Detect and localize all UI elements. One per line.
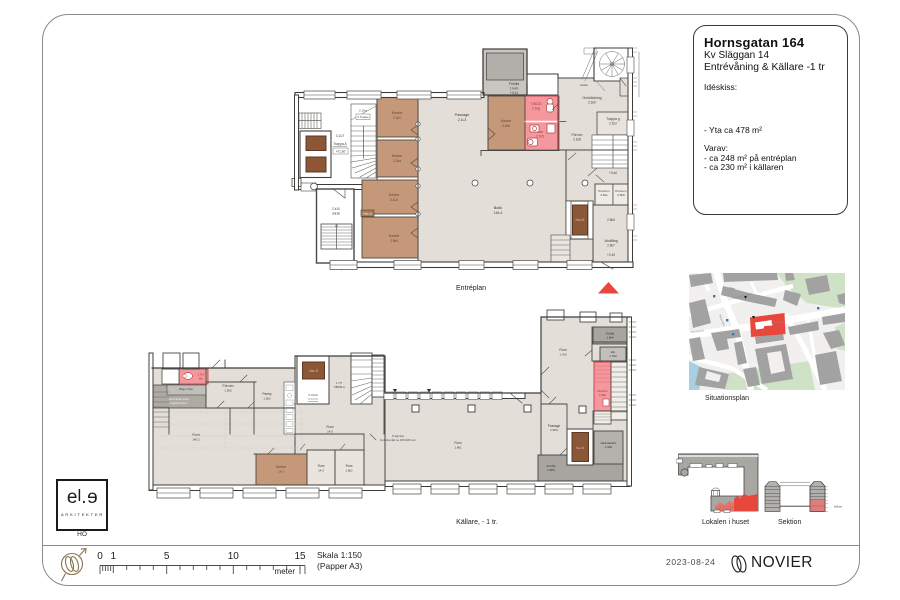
svg-text:Butik: Butik <box>494 206 503 210</box>
svg-text:1.7k0: 1.7k0 <box>559 353 567 357</box>
svg-text:Rum: Rum <box>559 348 566 352</box>
svg-text:Kontor: Kontor <box>501 119 512 123</box>
svg-text:hiss A: hiss A <box>311 142 321 146</box>
svg-text:15: 15 <box>294 551 306 562</box>
svg-text:Förrum: Förrum <box>572 133 583 137</box>
svg-text:14.0: 14.0 <box>327 430 333 434</box>
svg-text:1.6k0: 1.6k0 <box>605 445 612 449</box>
svg-text:1.8k1: 1.8k1 <box>454 446 462 450</box>
svg-text:2.1k0: 2.1k0 <box>588 101 596 105</box>
svg-text:T/8009 A: T/8009 A <box>333 385 345 389</box>
svg-text:14.2: 14.2 <box>278 470 284 474</box>
svg-text:Omklädning: Omklädning <box>582 96 601 100</box>
svg-text:2.1Lb: 2.1Lb <box>390 198 398 202</box>
svg-text:0: 0 <box>97 551 103 562</box>
svg-text:Trappa A: Trappa A <box>333 142 347 146</box>
svg-text:3.1U7: 3.1U7 <box>336 134 345 138</box>
svg-text:1.8k2: 1.8k2 <box>345 469 353 473</box>
svg-text:2.1ka: 2.1ka <box>393 159 401 163</box>
svg-text:meter: meter <box>275 567 296 576</box>
svg-text:140.2: 140.2 <box>192 438 200 442</box>
svg-text:Rum: Rum <box>326 425 333 429</box>
svg-text:+0,41: +0,41 <box>510 91 518 95</box>
svg-text:1: 1 <box>111 551 117 562</box>
svg-text:146.4: 146.4 <box>494 211 503 215</box>
svg-text:hiss ut: hiss ut <box>363 212 372 216</box>
svg-text:Rum: Rum <box>192 433 199 437</box>
svg-text:14.9: 14.9 <box>318 469 324 473</box>
svg-text:+0,40: +0,40 <box>607 253 615 257</box>
svg-text:1.9k4: 1.9k4 <box>606 336 613 340</box>
svg-text:Bag 1.7(a): Bag 1.7(a) <box>179 387 192 391</box>
svg-text:2.k10: 2.k10 <box>332 207 340 211</box>
svg-text:Kontor: Kontor <box>276 465 287 469</box>
svg-text:10: 10 <box>228 551 240 562</box>
svg-text:2.1k8: 2.1k8 <box>573 138 581 142</box>
svg-text:1.9k6: 1.9k6 <box>599 393 606 397</box>
svg-text:Pantry: Pantry <box>262 392 272 396</box>
svg-text:2.1k5: 2.1k5 <box>536 135 544 139</box>
svg-text:+/C.a0: +/C.a0 <box>336 150 346 154</box>
svg-text:Kontor: Kontor <box>392 154 403 158</box>
svg-text:1 kvm: 1 kvm <box>510 87 519 91</box>
svg-text:hiss B: hiss B <box>311 164 321 168</box>
svg-text:anrak: anrak <box>332 212 340 216</box>
svg-text:ingärdi anrum: ingärdi anrum <box>170 401 188 405</box>
svg-text:Rum: Rum <box>454 441 461 445</box>
svg-text:2.1L3: 2.1L3 <box>458 118 467 122</box>
svg-text:5.4310: 5.4310 <box>308 393 318 397</box>
svg-text:Förrum: Förrum <box>223 384 234 388</box>
svg-text:2.6ks: 2.6ks <box>600 193 608 197</box>
svg-text:Rum: Rum <box>318 464 325 468</box>
svg-text:Förråd: Förråd <box>509 82 520 86</box>
svg-text:2.1Na: 2.1Na <box>359 109 367 113</box>
svg-text:2.1k2: 2.1k2 <box>609 122 617 126</box>
svg-text:hiss B: hiss B <box>576 446 584 450</box>
svg-text:2.1kg: 2.1kg <box>532 107 540 111</box>
svg-text:Wc: Wc <box>199 377 204 381</box>
svg-text:2.6k5: 2.6k5 <box>617 193 625 197</box>
svg-text:2.1kk: 2.1kk <box>502 124 510 128</box>
svg-text:hiss B: hiss B <box>576 218 585 222</box>
svg-text:Kontor: Kontor <box>389 193 400 197</box>
svg-text:1.6Pa: 1.6Pa <box>550 428 558 432</box>
svg-text:2.6k5: 2.6k5 <box>607 218 615 222</box>
svg-text:1.5k5: 1.5k5 <box>224 389 232 393</box>
svg-text:1.7Ns: 1.7Ns <box>609 354 617 358</box>
svg-text:1.6PA: 1.6PA <box>547 468 555 472</box>
svg-text:Vindfång: Vindfång <box>604 239 617 243</box>
svg-text:2.6k7: 2.6k7 <box>607 244 615 248</box>
svg-text:Trappa g: Trappa g <box>606 117 620 121</box>
svg-text:invändsmått ca 160×460 mm: invändsmått ca 160×460 mm <box>380 438 417 442</box>
svg-text:Passage: Passage <box>455 113 470 117</box>
svg-text:hiss B: hiss B <box>309 369 318 373</box>
svg-text:5: 5 <box>164 551 170 562</box>
svg-text:+0,a0: +0,a0 <box>609 171 617 175</box>
svg-text:2.9k9: 2.9k9 <box>390 239 398 243</box>
svg-text:4 Trappe: 4 Trappe <box>357 115 369 119</box>
svg-text:2.1k1: 2.1k1 <box>393 116 401 120</box>
svg-text:T-WC/D: T-WC/D <box>530 102 542 106</box>
svg-text:vestre: vestre <box>580 83 589 87</box>
svg-text:Kontor: Kontor <box>392 111 403 115</box>
svg-text:Kontor: Kontor <box>389 234 400 238</box>
svg-text:1.5k3: 1.5k3 <box>263 397 271 401</box>
svg-text:källare: källare <box>834 505 843 509</box>
svg-text:Rum: Rum <box>346 464 353 468</box>
